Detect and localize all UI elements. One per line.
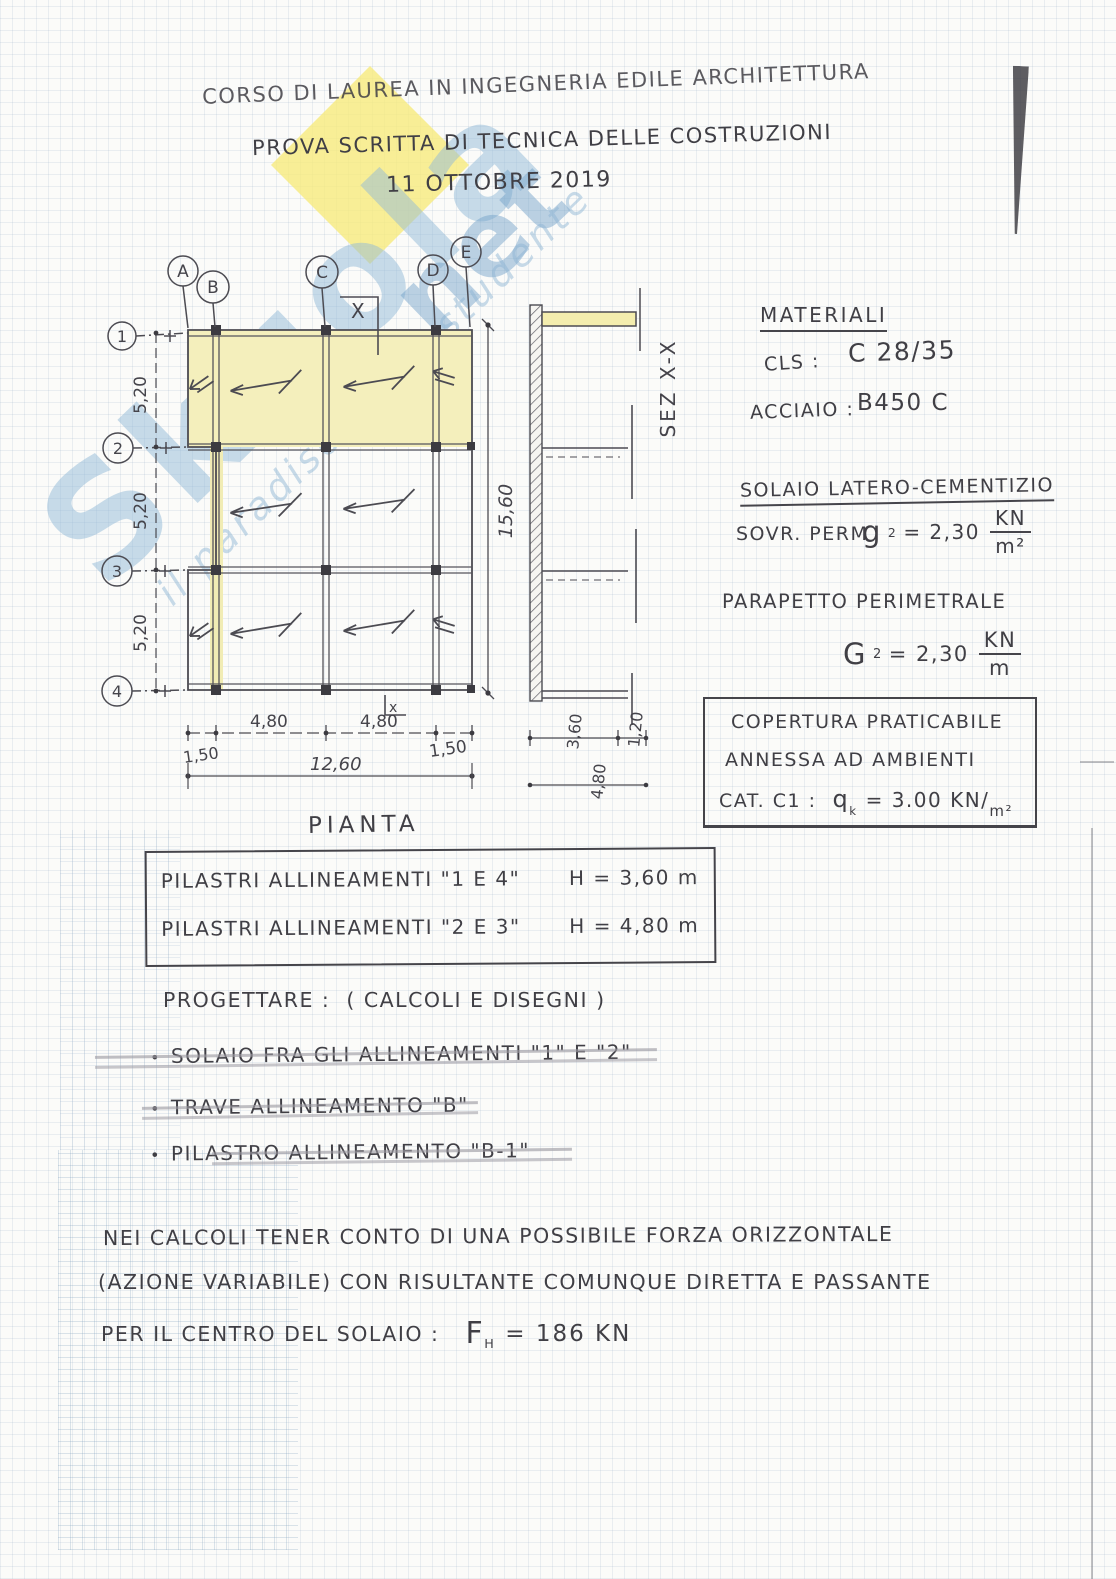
columns-height-box: PILASTRI ALLINEAMENTI "1 E 4" H = 3,60 m… (145, 847, 717, 967)
perm-unit-num: KN (990, 506, 1031, 533)
columns-height-row-1: PILASTRI ALLINEAMENTI "1 E 4" H = 3,60 m (161, 865, 699, 893)
section-view: SEZ X-X 3,60 1,20 4,80 (528, 288, 680, 800)
design-task-title-row: PROGETTARE : ( CALCOLI E DISEGNI ) (163, 988, 606, 1012)
left-dimension-chain: 5,20 5,20 5,20 (131, 331, 158, 694)
pilastri-row2-height: H = 4,80 m (569, 913, 699, 938)
dim-total-width: 12,60 (310, 754, 362, 775)
dim-bay-cd: 4,80 (360, 712, 398, 732)
dim-row-3-4: 5,20 (131, 614, 151, 652)
bullet-icon: • (150, 1146, 161, 1165)
pilastri-row1-height: H = 3,60 m (569, 865, 699, 890)
course-title: CORSO DI LAUREA IN INGEGNERIA EDILE ARCH… (202, 59, 870, 109)
section-wall (530, 305, 542, 701)
section-slab-2 (542, 405, 632, 499)
pilastri-row1-text: PILASTRI ALLINEAMENTI "1 E 4" (161, 866, 521, 893)
perm-eq: = 2,30 (903, 520, 980, 544)
grid-number-1: 1 (117, 327, 127, 346)
section-label: SEZ X-X (656, 338, 680, 437)
roof-line-1: COPERTURA PRATICABILE (731, 711, 1003, 733)
roof-q-value: = 3.00 KN/ (866, 788, 990, 812)
force-symbol: F (465, 1316, 484, 1351)
design-task-title: PROGETTARE : (163, 988, 330, 1012)
parapet-unit-fraction: KN m (979, 628, 1021, 680)
parapet-title: PARAPETTO PERIMETRALE (722, 590, 1006, 613)
force-symbol-sub: H (484, 1336, 495, 1351)
section-dimension-chain: 3,60 1,20 4,80 (528, 711, 649, 800)
dim-row-1-2: 5,20 (131, 376, 151, 414)
dim-total-height: 15,60 (495, 484, 517, 538)
grid-letter-e: E (461, 243, 472, 263)
parapet-symbol: G (843, 637, 867, 671)
parapet-unit-num: KN (979, 628, 1021, 655)
grid-letter-a: A (177, 262, 189, 282)
parapet-unit-den: m (979, 655, 1021, 680)
roof-line-3: CAT. C1 : qk = 3.00 KN/ m² (719, 785, 1013, 813)
note-line-3: PER IL CENTRO DEL SOLAIO : FH = 186 KN (101, 1316, 631, 1351)
note-line-3-text: PER IL CENTRO DEL SOLAIO : (101, 1322, 439, 1346)
perm-unit-den: m² (990, 533, 1031, 558)
highlight-areas (188, 330, 472, 690)
scan-page-edge-line (1091, 828, 1093, 1579)
section-dim-360: 3,60 (563, 713, 586, 750)
perm-symbol-sub: 2 (888, 525, 897, 540)
roof-q-unit: m² (989, 802, 1013, 820)
exam-title: PROVA SCRITTA DI TECNICA DELLE COSTRUZIO… (252, 120, 833, 160)
dim-bay-bc: 4,80 (250, 712, 288, 732)
pilastri-row2-text: PILASTRI ALLINEAMENTI "2 E 3" (161, 914, 521, 941)
section-top-slab (542, 312, 636, 326)
cls-label: CLS : (763, 350, 820, 376)
note-line-1: NEI CALCOLI TENER CONTO DI UNA POSSIBILE… (103, 1222, 894, 1250)
grid-column-letters: A B C D E (177, 243, 471, 298)
scanned-exam-page: Skuola .net il paradiso dello studente C… (0, 0, 1116, 1579)
columns-height-row-2: PILASTRI ALLINEAMENTI "2 E 3" H = 4,80 m (161, 913, 699, 941)
grid-letter-d: D (426, 261, 439, 281)
section-cut-label-top: X (351, 299, 365, 323)
perm-symbol: g (862, 515, 882, 549)
dim-row-2-3: 5,20 (131, 492, 151, 530)
structural-drawing: A B C D E 1 2 3 4 5,20 5,20 (88, 233, 728, 848)
design-task-subtitle: ( CALCOLI E DISEGNI ) (346, 988, 605, 1012)
note-line-2: (AZIONE VARIABILE) CON RISULTANTE COMUNQ… (98, 1270, 932, 1294)
steel-value: B450 C (857, 390, 949, 416)
plan-label: PIANTA (308, 811, 420, 839)
parapet-symbol-sub: 2 (873, 647, 883, 662)
roof-q-sub: k (849, 804, 857, 818)
grid-number-3: 3 (112, 562, 122, 581)
grid-letter-c: C (316, 263, 328, 283)
bottom-dimension-chain: 1,50 4,80 4,80 1,50 12,60 (182, 712, 475, 789)
roof-q-symbol: q (833, 785, 850, 813)
scan-artifact-dash (1080, 761, 1114, 763)
roof-line-2: ANNESSA AD AMBIENTI (725, 749, 976, 771)
solaio-title: SOLAIO LATERO-CEMENTIZIO (740, 474, 1054, 506)
parapet-formula: G2 = 2,30 KN m (843, 628, 1021, 680)
roof-load-box: COPERTURA PRATICABILE ANNESSA AD AMBIENT… (703, 697, 1037, 828)
section-slab-3 (542, 529, 636, 623)
dim-right-cantilever: 1,50 (428, 737, 468, 762)
cls-value: C 28/35 (848, 335, 957, 368)
scan-artifact-wedge (1007, 66, 1029, 234)
grid-number-4: 4 (112, 682, 122, 701)
perm-unit-fraction: KN m² (990, 506, 1031, 558)
roof-cat-label: CAT. C1 : (719, 790, 817, 812)
exam-date: 11 OTTOBRE 2019 (386, 167, 612, 198)
grid-number-2: 2 (113, 439, 123, 458)
section-dim-480: 4,80 (587, 763, 610, 800)
section-dim-120: 1,20 (624, 711, 647, 748)
force-value: = 186 KN (505, 1321, 631, 1347)
steel-label: ACCIAIO : (750, 398, 855, 424)
grid-row-numbers: 1 2 3 4 (112, 327, 127, 701)
parapet-eq: = 2,30 (889, 642, 969, 666)
right-dimension-total: 15,60 (482, 319, 517, 699)
perm-load-label: SOVR. PERM (736, 523, 868, 545)
grid-letter-b: B (207, 278, 219, 298)
materials-title: MATERIALI (760, 303, 887, 332)
section-bottom-slab (542, 673, 632, 725)
perm-load-formula: g2 = 2,30 KN m² (862, 506, 1031, 558)
